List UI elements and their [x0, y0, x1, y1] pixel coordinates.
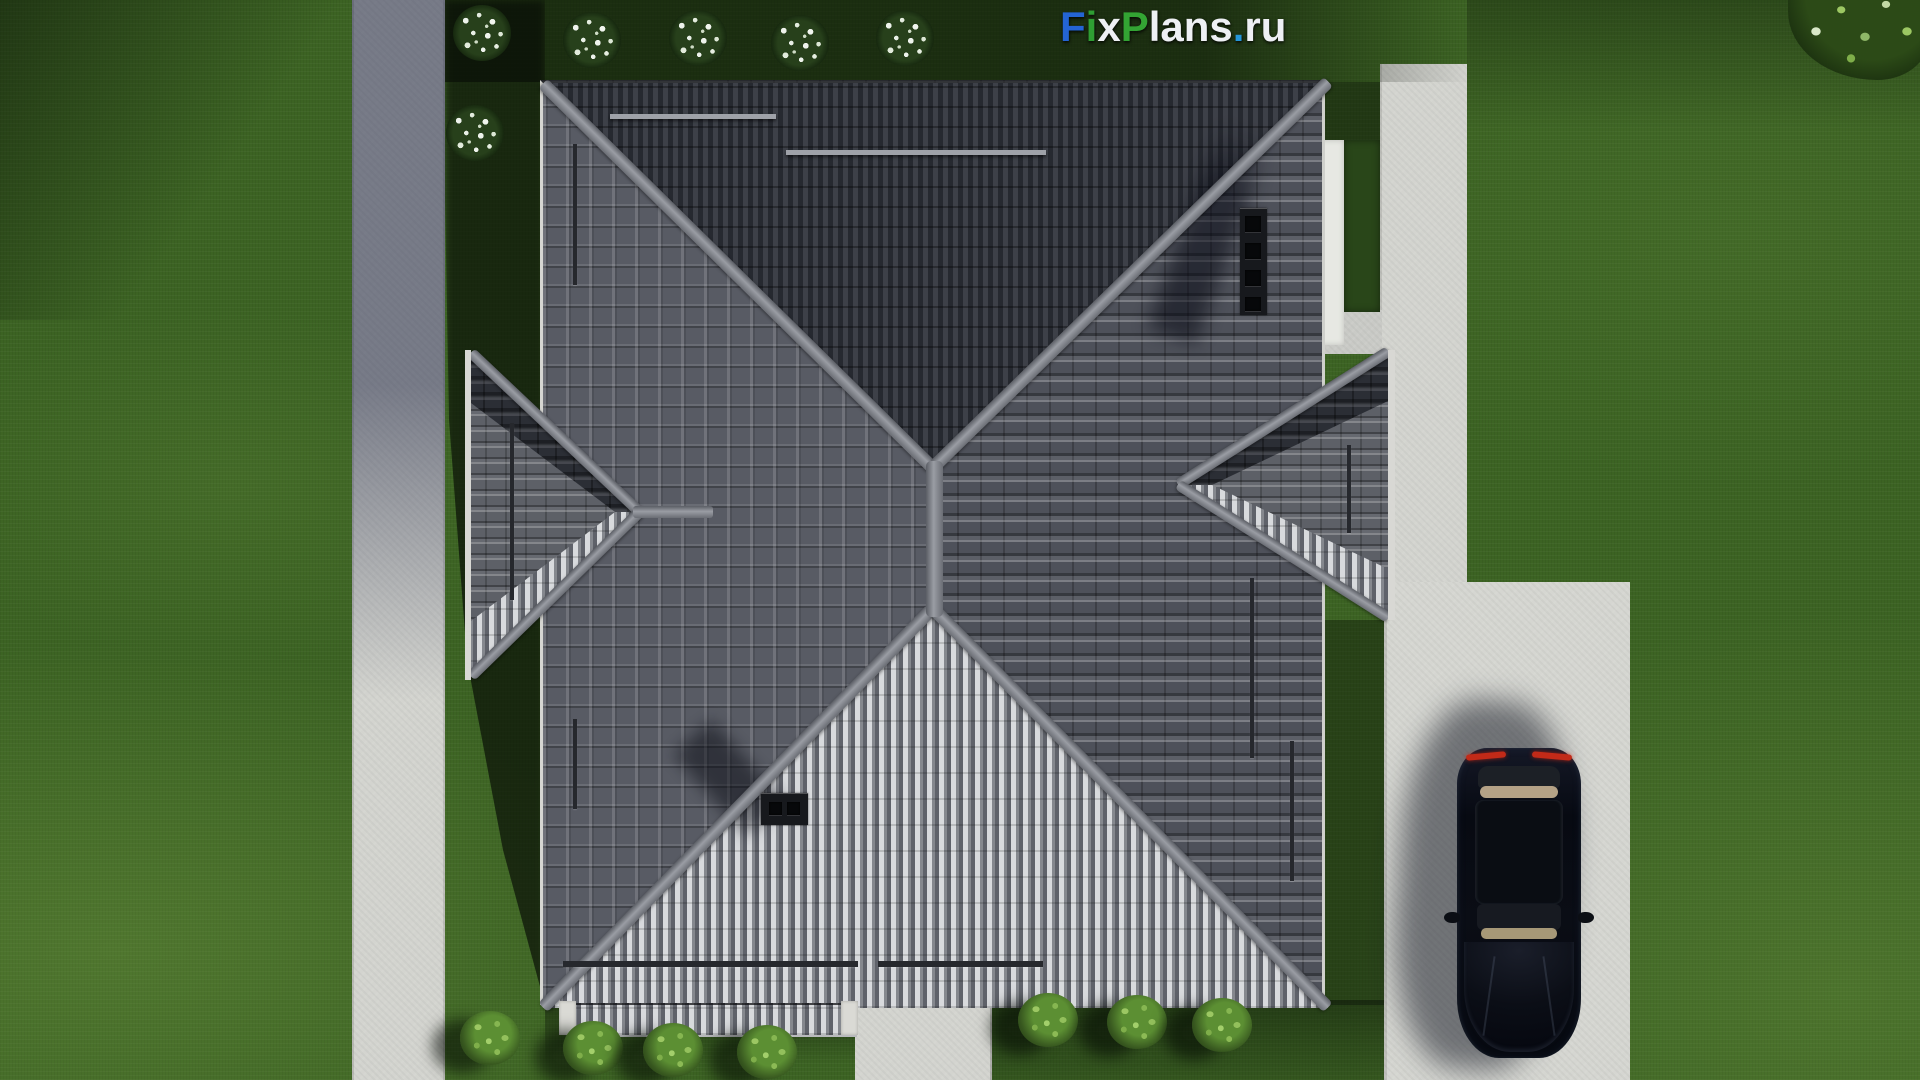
flowering-bush [563, 12, 621, 68]
car [1448, 742, 1590, 1064]
snow-guard [1290, 741, 1294, 881]
brand-letter: l [1149, 3, 1161, 51]
car-dashboard [1481, 928, 1557, 939]
green-bush [563, 1021, 623, 1075]
green-bush [1192, 998, 1252, 1052]
chimney-small [761, 793, 808, 825]
chimney-tall [1240, 208, 1267, 315]
brand-letter: F [1060, 3, 1086, 51]
car-rear-window [1478, 766, 1560, 788]
brand-letter: i [1086, 3, 1098, 51]
green-bush [1107, 995, 1167, 1049]
center-ridge [926, 461, 943, 617]
car-roof-panel [1475, 800, 1563, 904]
flowering-bush [771, 15, 829, 71]
flowering-bush [453, 5, 511, 61]
brand-letter: P [1121, 3, 1149, 51]
grass-pocket [1344, 140, 1380, 312]
car-mirror-left [1444, 912, 1460, 923]
grass-shadow-right-strip [1325, 620, 1384, 1005]
flowering-bush [446, 105, 504, 161]
brand-letter: s [1209, 3, 1232, 51]
green-bush [460, 1011, 520, 1065]
wing-fascia [1388, 350, 1395, 620]
walkway-bottom [855, 1000, 992, 1080]
snow-guard [573, 144, 577, 285]
car-hood [1464, 942, 1574, 1052]
left-roof-wing [465, 348, 717, 688]
site-plan-render: FixPlans.ru [0, 0, 1920, 1080]
brand-letter: r [1244, 3, 1260, 51]
wing-fascia [465, 350, 471, 680]
car-mirror-right [1578, 912, 1594, 923]
snow-guard [1347, 445, 1351, 533]
snow-guard [510, 423, 514, 600]
car-parcel-shelf [1480, 786, 1558, 798]
wing-ridge-stub [633, 506, 713, 518]
green-bush [643, 1023, 703, 1077]
snow-guard [610, 114, 776, 119]
snow-guard [878, 961, 1043, 967]
flowering-bush [669, 10, 727, 66]
green-bush [737, 1025, 797, 1079]
brand-letter: x [1097, 3, 1120, 51]
path-shadow-tint [352, 0, 445, 700]
porch-post [841, 1001, 858, 1035]
brand-letter: u [1261, 3, 1287, 51]
flowering-bush [876, 10, 934, 66]
brand-watermark: FixPlans.ru [1060, 2, 1286, 52]
snow-guard [573, 719, 577, 809]
grass-shadow-topleft [0, 0, 352, 320]
car-windshield [1477, 904, 1561, 930]
brand-letter: a [1160, 3, 1183, 51]
brand-letter: n [1184, 3, 1210, 51]
green-bush [1018, 993, 1078, 1047]
brand-letter: . [1233, 3, 1245, 51]
snow-guard [563, 961, 858, 967]
snow-guard [786, 150, 1046, 155]
right-roof-wing [1100, 346, 1396, 631]
